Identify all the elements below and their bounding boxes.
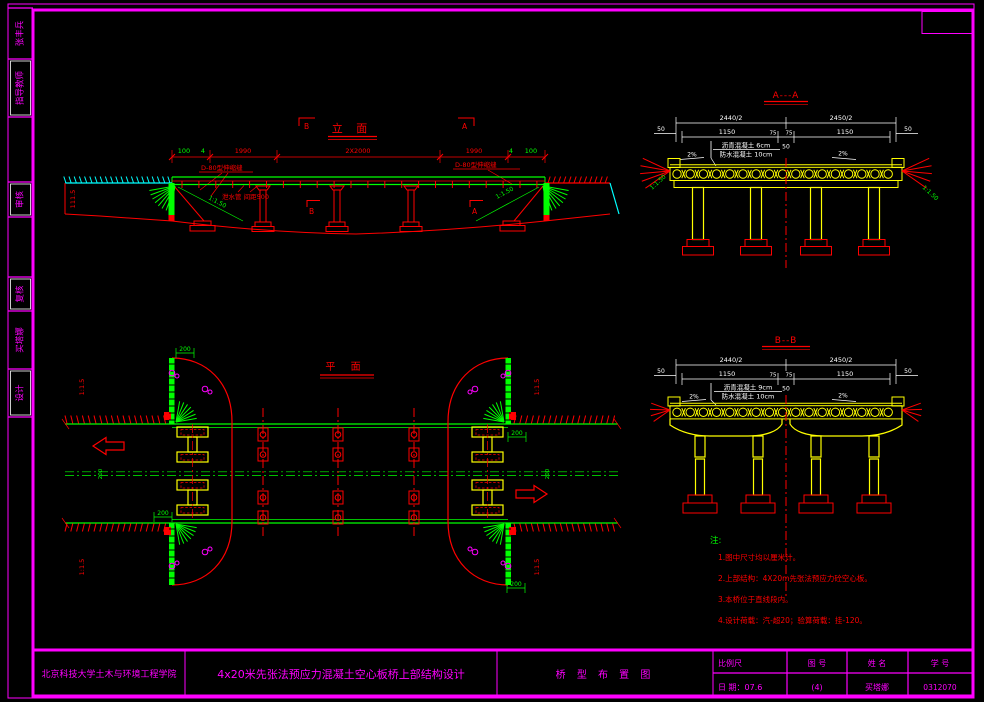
hatch-line — [902, 410, 918, 421]
sidebar: 张丰兵 指导教师 审核 复核 买塔娜 设计 — [8, 8, 33, 417]
name-value: 买塔娜 — [865, 682, 889, 692]
void-circle — [726, 170, 734, 178]
hatch-line — [126, 177, 128, 184]
section-marker-label: B — [309, 207, 314, 216]
hatch-line — [589, 524, 591, 532]
cross-slope-label: 2% — [687, 152, 697, 159]
project-title: 4x20米先张法预应力混凝土空心板桥上部结构设计 — [217, 667, 465, 681]
hatch-line — [77, 416, 79, 424]
dim-label: 50 — [657, 368, 665, 375]
void-circle — [805, 408, 813, 416]
hatch-line — [543, 416, 545, 424]
hatch-line — [64, 177, 66, 184]
dim-label: 2X2000 — [345, 147, 370, 155]
void-circle — [792, 408, 800, 416]
hatch-line — [121, 177, 123, 184]
dim-label: 200 — [157, 510, 169, 517]
scale-label: 比例尺 — [718, 658, 742, 668]
void-circle — [871, 170, 879, 178]
hatch-line — [123, 416, 125, 424]
void-circle — [858, 170, 866, 178]
footing — [746, 495, 770, 503]
hatch-line — [566, 416, 568, 424]
curb — [892, 159, 904, 168]
hatch-line — [651, 410, 670, 416]
slope-fan — [176, 401, 197, 422]
plan-view: 平 面 — [62, 346, 621, 593]
hatch-line — [152, 416, 154, 424]
cross-slope-label: 2% — [838, 393, 848, 400]
dim-label: 200 — [179, 346, 191, 353]
slope-fan — [902, 158, 932, 188]
hatch-line — [584, 177, 586, 184]
shrub-icon — [468, 386, 478, 394]
hatch-line — [902, 410, 921, 416]
footing — [687, 240, 709, 247]
dim-label: 50 — [782, 144, 790, 151]
void-circle — [686, 408, 694, 416]
dim-label: 75 — [786, 373, 793, 379]
hatch-line — [88, 524, 90, 532]
hatch-line — [85, 177, 87, 184]
view-title: B--B — [775, 336, 798, 346]
name-label: 姓 名 — [868, 658, 887, 668]
hatch-line — [537, 416, 539, 424]
slope-fan — [483, 401, 504, 422]
figure-number-label: 图 号 — [808, 659, 827, 668]
hatch-line — [152, 177, 154, 184]
slope-label: 1:1.5 — [533, 379, 541, 396]
direction-arrow-left — [93, 438, 124, 455]
hatch-line — [117, 524, 119, 532]
hatch-line — [572, 416, 574, 424]
section-b-dimensions: 2440/2 2450/2 50 50 1150 75 75 1150 50 — [654, 356, 918, 393]
section-marker-label: A — [472, 207, 478, 216]
hatch-line — [520, 416, 522, 424]
note-item: 3.本桥位于直线段内。 — [718, 594, 793, 604]
hatch-line — [106, 416, 108, 424]
hatch-line — [560, 416, 562, 424]
hatch-line — [71, 524, 73, 532]
joint-label: D-80型伸缩缝 — [201, 163, 243, 172]
hatch-line — [607, 524, 609, 532]
hatch-line — [79, 177, 81, 184]
void-circle — [752, 408, 760, 416]
hatch-line — [555, 416, 557, 424]
hatch-line — [163, 177, 165, 184]
hatch-line — [595, 524, 597, 532]
footing — [683, 247, 714, 256]
abutment-seat — [544, 215, 550, 221]
section-marker-label: B — [304, 122, 309, 131]
cross-slope-label: 2% — [838, 151, 848, 158]
slope-label: 1:1.50 — [921, 184, 940, 202]
hatch-line — [569, 177, 571, 184]
cad-drawing: 张丰兵 指导教师 审核 复核 买塔娜 设计 立 面 B A — [0, 0, 984, 702]
void-circle — [884, 170, 892, 178]
pavement-top-label: 沥青混凝土 6cm — [722, 141, 771, 150]
hatch-line — [574, 177, 576, 184]
shrub-icons — [169, 370, 511, 569]
hatch-line — [584, 524, 586, 532]
shrub-icon — [202, 386, 212, 394]
shrub-icon — [468, 547, 478, 555]
hatch-line — [589, 416, 591, 424]
joint-label: D-80型伸缩缝 — [455, 160, 497, 169]
cross-slope-label: 2% — [689, 394, 699, 401]
void-circle — [739, 408, 747, 416]
hatch-line — [71, 416, 73, 424]
hatch-line — [654, 410, 670, 421]
hatch-line — [105, 177, 107, 184]
void-circle — [752, 170, 760, 178]
sidebar-label: 买塔娜 — [15, 327, 26, 353]
void-circle — [792, 170, 800, 178]
hatch-line — [146, 524, 148, 532]
hatch-line — [106, 524, 108, 532]
hatch-line — [88, 416, 90, 424]
hatch-line — [100, 416, 102, 424]
view-title: A---A — [773, 91, 800, 101]
hatch-line — [605, 177, 607, 184]
hatch-line — [94, 416, 96, 424]
dim-label: 200 — [545, 468, 551, 479]
void-circle — [844, 408, 852, 416]
hatch-line — [579, 177, 581, 184]
hatch-line — [131, 177, 133, 184]
slope-fan — [176, 524, 197, 545]
void-circle — [673, 170, 681, 178]
dim-label: 50 — [904, 126, 912, 133]
slope-fan — [483, 524, 504, 545]
void-circle — [818, 408, 826, 416]
pavement-top-label: 沥青混凝土 9cm — [724, 383, 773, 392]
hatch-line — [69, 177, 71, 184]
slope-label: 1:1.5 — [533, 559, 541, 576]
dim-label: 2450/2 — [830, 356, 853, 364]
sidebar-label: 复核 — [15, 285, 26, 303]
hatch-line — [549, 524, 551, 532]
dim-label: 100 — [525, 147, 537, 155]
hatch-line — [555, 524, 557, 532]
hatch-line — [129, 416, 131, 424]
hatch-line — [548, 177, 550, 184]
section-a-view: A---A 2440/2 2450/2 50 50 1150 75 75 115… — [640, 91, 940, 268]
hatch-line — [531, 416, 533, 424]
curb — [668, 159, 680, 168]
void-circle — [712, 170, 720, 178]
slope-label: 1:1.50 — [649, 173, 668, 191]
hatch-line — [135, 416, 137, 424]
footing — [805, 240, 827, 247]
hatch-line — [168, 177, 170, 184]
hatch-line — [650, 409, 670, 410]
notes-heading: 注: — [710, 535, 721, 546]
hatch-line — [147, 177, 149, 184]
dim-label: 1150 — [719, 128, 736, 136]
void-circle — [765, 408, 773, 416]
hatch-line — [152, 524, 154, 532]
hatch-line — [526, 416, 528, 424]
pavement-note: 沥青混凝土 6cm 防水混凝土 10cm — [711, 141, 780, 167]
dim-label: 75 — [786, 131, 793, 137]
hatch-line — [100, 524, 102, 532]
void-circle — [673, 408, 681, 416]
title-block: 北京科技大学土木与环境工程学院 4x20米先张法预应力混凝土空心板桥上部结构设计… — [33, 650, 973, 696]
abutment-seat — [169, 215, 175, 221]
offset-dims: 200 200 200 200 200 200 — [98, 346, 551, 593]
dim-label: 4 — [509, 147, 513, 155]
drawing-name: 桥 型 布 置 图 — [556, 668, 655, 681]
dim-label: 2440/2 — [720, 356, 743, 364]
void-circle — [765, 170, 773, 178]
note-item: 1.图中尺寸均以厘米计。 — [718, 552, 800, 562]
hatch-line — [111, 416, 113, 424]
dim-label: 200 — [510, 581, 522, 588]
hatch-line — [553, 177, 555, 184]
hatch-line — [158, 416, 160, 424]
hatch-line — [74, 177, 76, 184]
pavement-bottom-label: 防水混凝土 10cm — [720, 150, 773, 159]
hatch-line — [82, 524, 84, 532]
hatch-line — [651, 403, 670, 410]
void-circle — [699, 408, 707, 416]
elevation-deck — [172, 177, 545, 188]
hatch-line — [543, 524, 545, 532]
void-circle — [858, 408, 866, 416]
dim-label: 2450/2 — [830, 114, 853, 122]
sidebar-label: 审核 — [15, 191, 26, 209]
notes: 注: 1.图中尺寸均以厘米计。 2.上部结构：4X20m先张法预应力砼空心板。 … — [710, 535, 872, 625]
dim-label: 75 — [770, 373, 777, 379]
hatch-line — [607, 416, 609, 424]
dim-label: 1150 — [837, 128, 854, 136]
hatch-line — [601, 524, 603, 532]
hatch-line — [595, 416, 597, 424]
sidebar-label: 设计 — [15, 384, 26, 402]
dim-label: 100 — [178, 147, 190, 155]
dim-label: 1150 — [719, 370, 736, 378]
elevation-value-label: 111.5 — [69, 190, 77, 209]
slope-label: 1:1.5 — [78, 559, 86, 576]
section-marker-label: A — [462, 122, 468, 131]
hatch-line — [566, 524, 568, 532]
void-circle — [739, 170, 747, 178]
ground-line: 111.5 — [64, 177, 619, 235]
drain-label: 泄水管 间距500 — [222, 192, 269, 201]
footing — [688, 495, 712, 503]
hatch-line — [558, 177, 560, 184]
hatch-line — [135, 524, 137, 532]
hatch-line — [564, 177, 566, 184]
slope-label: 1:1.5 — [78, 379, 86, 396]
hatch-line — [158, 524, 160, 532]
footing — [863, 240, 885, 247]
student-id-value: 0312070 — [923, 683, 957, 692]
wall-hatch — [169, 364, 511, 578]
hatch-line — [90, 177, 92, 184]
hatch-line — [137, 177, 139, 184]
hatch-line — [613, 524, 615, 532]
revision-box — [922, 12, 973, 34]
pavement-note: 沥青混凝土 9cm 防水混凝土 10cm — [711, 383, 782, 406]
hatch-line — [590, 177, 592, 184]
slope-fan — [902, 403, 922, 421]
void-circle — [726, 408, 734, 416]
view-title: 立 面 — [332, 121, 373, 135]
hatch-line — [595, 177, 597, 184]
curb — [668, 397, 680, 406]
hatch-line — [129, 524, 131, 532]
void-circle — [818, 170, 826, 178]
hatch-line — [65, 416, 67, 424]
hatch-line — [95, 177, 97, 184]
void-circle — [844, 170, 852, 178]
void-circle — [884, 408, 892, 416]
dim-label: 75 — [770, 131, 777, 137]
dim-label: 2440/2 — [720, 114, 743, 122]
pavement-bottom-label: 防水混凝土 10cm — [722, 392, 775, 401]
footing — [683, 503, 717, 513]
roadway-edges — [62, 416, 621, 532]
footing — [862, 495, 886, 503]
inner-border — [33, 10, 973, 696]
school-name: 北京科技大学土木与环境工程学院 — [41, 668, 176, 680]
void-circle — [805, 170, 813, 178]
dim-label: 4 — [201, 147, 205, 155]
hatch-line — [123, 524, 125, 532]
dim-label: 50 — [782, 386, 790, 393]
hatch-line — [146, 416, 148, 424]
void-circle — [831, 408, 839, 416]
hatch-line — [111, 524, 113, 532]
hatch-line — [902, 409, 922, 410]
hatch-line — [117, 416, 119, 424]
note-item: 4.设计荷载：汽-超20；验算荷载：挂-120。 — [718, 615, 867, 625]
view-title: 平 面 — [325, 362, 366, 373]
hatch-line — [142, 177, 144, 184]
hatch-line — [902, 403, 921, 410]
hatch-line — [65, 524, 67, 532]
section-b-columns — [683, 436, 891, 513]
hatch-line — [584, 416, 586, 424]
hatch-line — [140, 416, 142, 424]
note-item: 2.上部结构：4X20m先张法预应力砼空心板。 — [718, 573, 872, 583]
hatch-line — [140, 524, 142, 532]
footing — [741, 247, 772, 256]
dim-label: 1150 — [837, 370, 854, 378]
date-value: 日 期：07.6 — [718, 683, 762, 692]
elevation-view: 立 面 B A 100 4 1990 2X2000 1990 4 — [64, 118, 619, 234]
hatch-line — [520, 524, 522, 532]
dim-label: 200 — [98, 468, 104, 479]
void-circle — [712, 408, 720, 416]
dim-label: 1990 — [466, 147, 483, 155]
hatch-line — [549, 416, 551, 424]
dim-label: 200 — [511, 430, 523, 437]
void-circle — [699, 170, 707, 178]
slope-fan — [650, 403, 670, 421]
hatch-line — [601, 416, 603, 424]
hatch-line — [572, 524, 574, 532]
student-id-label: 学 号 — [931, 658, 950, 668]
footing — [859, 247, 890, 256]
curb — [892, 397, 904, 406]
hatch-line — [537, 524, 539, 532]
shrub-icon — [202, 547, 212, 555]
hatch-line — [77, 524, 79, 532]
sidebar-label: 张丰兵 — [15, 20, 26, 46]
dim-label: 50 — [904, 368, 912, 375]
footing — [804, 495, 828, 503]
outer-border — [8, 4, 974, 698]
footing — [799, 503, 833, 513]
dim-label: 1990 — [235, 147, 252, 155]
hatch-line — [100, 177, 102, 184]
hatch-line — [157, 177, 159, 184]
hatch-line — [111, 177, 113, 184]
void-circle — [831, 170, 839, 178]
footing — [857, 503, 891, 513]
hatch-line — [600, 177, 602, 184]
hatch-line — [560, 524, 562, 532]
footing — [801, 247, 832, 256]
hatch-line — [94, 524, 96, 532]
footing — [745, 240, 767, 247]
hatch-line — [116, 177, 118, 184]
drawing-sheet: 张丰兵 指导教师 审核 复核 买塔娜 设计 立 面 B A — [0, 0, 984, 702]
hatch-line — [578, 524, 580, 532]
dim-label: 50 — [657, 126, 665, 133]
hatch-line — [526, 524, 528, 532]
section-a-dimensions: 2440/2 2450/2 50 50 1150 75 75 1150 50 — [654, 114, 918, 151]
hatch-line — [531, 524, 533, 532]
sheet-frame — [8, 4, 974, 698]
direction-arrow-right — [516, 486, 547, 503]
void-circle — [686, 170, 694, 178]
sidebar-label: 指导教师 — [15, 71, 26, 106]
hatch-line — [578, 416, 580, 424]
figure-number-value: (4) — [811, 683, 822, 692]
void-circle — [871, 408, 879, 416]
footing — [741, 503, 775, 513]
hatch-line — [82, 416, 84, 424]
slope-label: 1:1.50 — [495, 185, 515, 200]
